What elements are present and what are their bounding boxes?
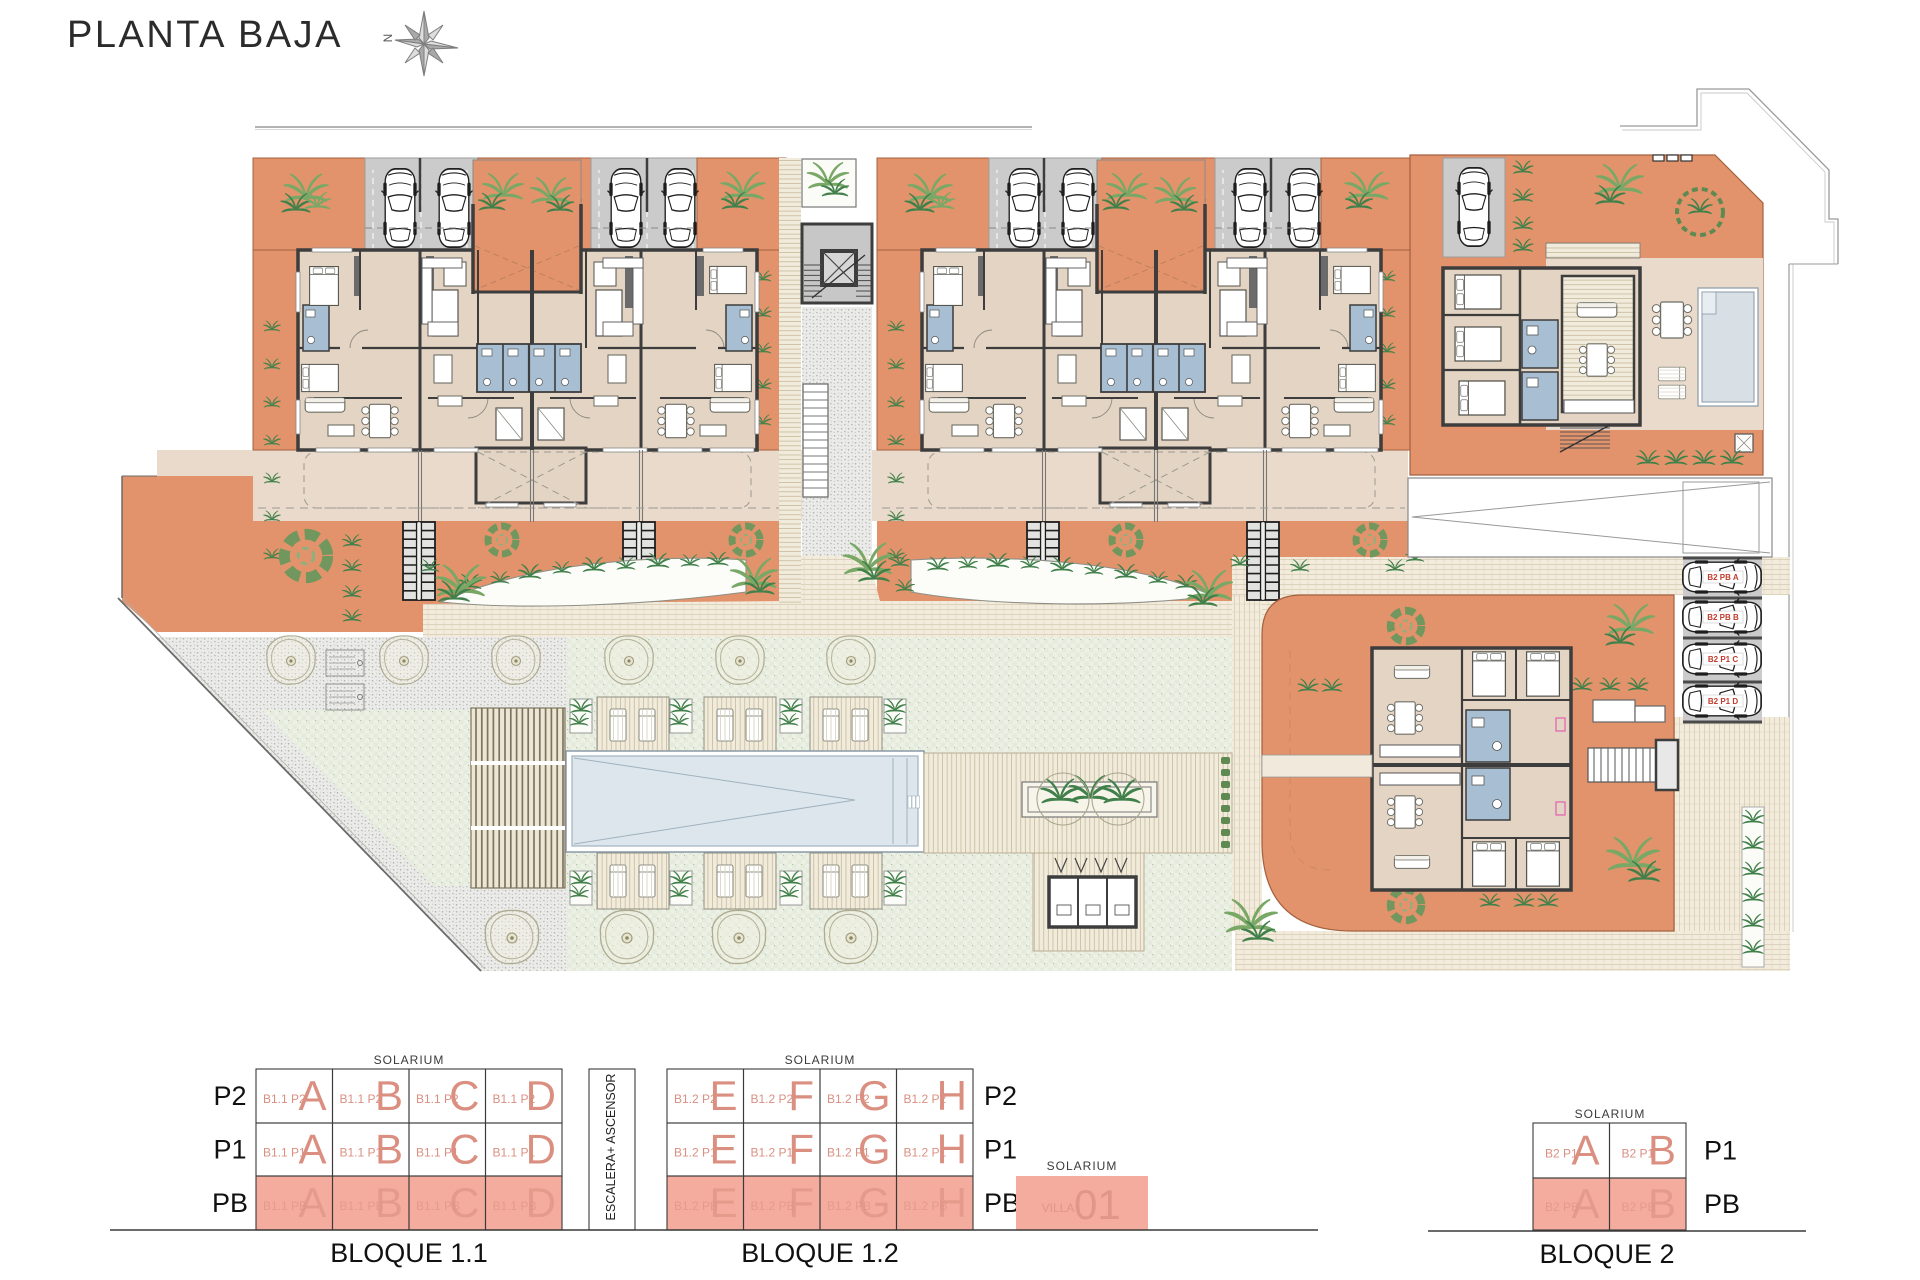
svg-text:C: C [449, 1126, 479, 1173]
svg-text:A: A [298, 1126, 326, 1173]
svg-text:B: B [1648, 1127, 1676, 1174]
svg-text:A: A [298, 1179, 326, 1226]
svg-text:H: H [937, 1072, 967, 1119]
svg-text:A: A [298, 1072, 326, 1119]
svg-text:PLANTA BAJA: PLANTA BAJA [67, 14, 343, 56]
svg-text:P2: P2 [213, 1081, 246, 1111]
svg-text:H: H [937, 1179, 967, 1226]
svg-text:SOLARIUM: SOLARIUM [785, 1053, 856, 1067]
svg-text:H: H [937, 1126, 967, 1173]
svg-text:E: E [709, 1072, 737, 1119]
svg-text:C: C [449, 1072, 479, 1119]
svg-text:N: N [381, 34, 395, 43]
svg-text:B: B [375, 1179, 403, 1226]
svg-text:SOLARIUM: SOLARIUM [1047, 1159, 1118, 1173]
svg-text:B2 PB A: B2 PB A [1707, 573, 1738, 582]
svg-text:B2 PB B: B2 PB B [1707, 613, 1739, 622]
svg-text:G: G [858, 1126, 891, 1173]
svg-text:PB: PB [212, 1188, 248, 1218]
svg-text:B: B [375, 1126, 403, 1173]
svg-text:P2: P2 [984, 1081, 1017, 1111]
svg-text:BLOQUE 1.1: BLOQUE 1.1 [330, 1238, 488, 1268]
svg-text:D: D [526, 1179, 556, 1226]
svg-text:VILLA: VILLA [1042, 1201, 1075, 1215]
svg-text:D: D [526, 1126, 556, 1173]
svg-text:B2 P1 C: B2 P1 C [1708, 655, 1738, 664]
svg-text:01: 01 [1074, 1181, 1121, 1228]
svg-text:D: D [526, 1072, 556, 1119]
svg-text:P1: P1 [1704, 1136, 1737, 1166]
svg-text:C: C [449, 1179, 479, 1226]
svg-text:PB: PB [1704, 1189, 1740, 1219]
svg-text:G: G [858, 1179, 891, 1226]
svg-text:B: B [1648, 1180, 1676, 1227]
svg-text:BLOQUE 1.2: BLOQUE 1.2 [741, 1238, 899, 1268]
svg-text:ESCALERA+ ASCENSOR: ESCALERA+ ASCENSOR [604, 1074, 618, 1221]
svg-text:BLOQUE 2: BLOQUE 2 [1539, 1239, 1674, 1269]
svg-text:P1: P1 [984, 1135, 1017, 1165]
svg-text:F: F [788, 1179, 814, 1226]
svg-text:B: B [375, 1072, 403, 1119]
svg-text:PB: PB [984, 1188, 1020, 1218]
svg-text:B1.2 P2: B1.2 P2 [751, 1092, 794, 1106]
svg-text:E: E [709, 1126, 737, 1173]
svg-text:SOLARIUM: SOLARIUM [374, 1053, 445, 1067]
svg-text:P1: P1 [213, 1135, 246, 1165]
svg-text:F: F [788, 1072, 814, 1119]
svg-text:G: G [858, 1072, 891, 1119]
svg-text:E: E [709, 1179, 737, 1226]
svg-text:F: F [788, 1126, 814, 1173]
svg-text:SOLARIUM: SOLARIUM [1575, 1107, 1646, 1121]
svg-text:B1.2 P1: B1.2 P1 [751, 1146, 794, 1160]
svg-text:B2 P1 D: B2 P1 D [1708, 697, 1738, 706]
svg-text:A: A [1571, 1127, 1599, 1174]
svg-text:A: A [1571, 1180, 1599, 1227]
